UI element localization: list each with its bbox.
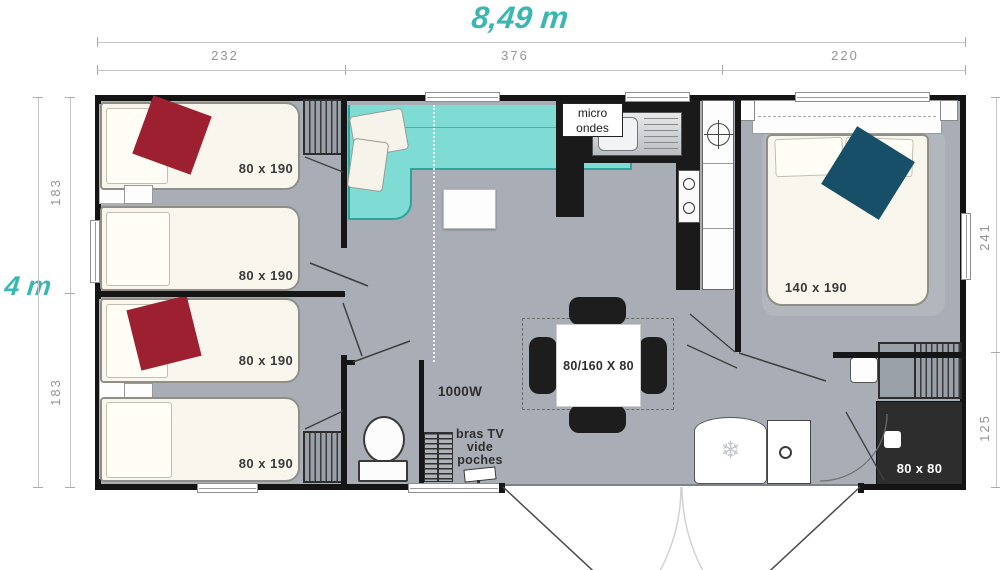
dim-tick	[33, 97, 43, 98]
floorplan-canvas: 8,49 m 232 376 220 4 m 183 183 241 125 8…	[0, 0, 1000, 570]
dim-tick	[65, 293, 75, 294]
wall-left-block-bottom	[341, 355, 347, 490]
master-nightstand-right	[940, 100, 958, 121]
shower-drain	[884, 431, 901, 448]
window-right-master	[961, 213, 971, 280]
wall-master-bedroom	[735, 95, 741, 352]
master-bed-size-label: 140 x 190	[766, 280, 866, 295]
dim-tick	[33, 487, 43, 488]
coffee-table	[443, 189, 496, 229]
table-size-label: 80/160 X 80	[563, 359, 634, 373]
dim-right-2: 125	[974, 388, 994, 468]
patio-door-arc-right	[682, 487, 860, 570]
window-top-living	[425, 92, 500, 102]
wall-toilet-right	[419, 360, 424, 487]
dim-top-2: 376	[440, 48, 590, 63]
dim-left-2: 183	[45, 352, 65, 432]
toilet-tank	[358, 460, 408, 482]
kitchen-counter-left	[556, 163, 584, 217]
sofa-bed-fold-line	[433, 105, 435, 362]
dim-top-1: 232	[150, 48, 300, 63]
toilet-bowl	[363, 416, 405, 463]
dining-table: 80/160 X 80	[556, 324, 641, 407]
dim-line-left-total	[38, 97, 39, 488]
patio-door-arc-left	[503, 487, 681, 570]
bathroom-corner-fixture	[850, 357, 878, 383]
dim-tick	[991, 97, 1000, 98]
patio-hinge-right	[858, 483, 864, 493]
window-bottom-hall	[408, 483, 500, 493]
dim-tick	[991, 352, 1000, 353]
microwave-label-line1: micro	[563, 106, 622, 121]
microwave-box: micro ondes	[562, 103, 623, 137]
window-bottom-bedroom2	[197, 483, 258, 493]
dim-tick	[345, 65, 346, 75]
dim-tick	[65, 487, 75, 488]
dim-right-1: 241	[974, 197, 994, 277]
tv-shelf-label: bras TV vide poches	[442, 428, 518, 467]
bed-4-size-label: 80 x 190	[216, 456, 316, 471]
sink-drainer	[644, 118, 678, 150]
tv-label-line3: poches	[442, 454, 518, 467]
microwave-label-line2: ondes	[563, 121, 622, 136]
patio-door-leaf-left	[503, 487, 633, 570]
wardrobe-bedroom-1	[303, 99, 344, 155]
bed-2-pillow	[106, 212, 170, 286]
bed-4-pillow	[106, 402, 172, 478]
dim-tick	[65, 97, 75, 98]
patio-hinge-left	[499, 483, 505, 493]
wall-toilet-top-stub	[341, 360, 355, 365]
dim-line-top-segments	[97, 70, 966, 71]
patio-door-leaf-right	[730, 487, 860, 570]
dim-tick	[97, 37, 98, 47]
bed-3-size-label: 80 x 190	[216, 353, 316, 368]
window-top-master	[795, 92, 930, 102]
dining-chair-bottom	[569, 405, 626, 433]
window-top-kitchen	[625, 92, 690, 102]
bed-2-size-label: 80 x 190	[216, 268, 316, 283]
dim-top-3: 220	[770, 48, 920, 63]
dim-line-right-segments	[996, 97, 997, 488]
dim-tick	[991, 487, 1000, 488]
total-width-label: 8,49 m	[418, 0, 622, 36]
cooktop-burner-2	[683, 202, 695, 214]
dim-left-1: 183	[45, 152, 65, 232]
sofa-cushion-2	[347, 138, 390, 193]
snowflake-icon: ❄	[720, 436, 740, 465]
dining-chair-left	[529, 337, 557, 394]
dining-chair-right	[639, 337, 667, 394]
heater-power-label: 1000W	[425, 384, 495, 399]
shower-size-label: 80 x 80	[876, 461, 963, 476]
bed-1-size-label: 80 x 190	[216, 161, 316, 176]
wall-left-block-top	[341, 95, 347, 248]
wardrobe-bedroom-2	[303, 431, 344, 483]
washbasin-knob	[779, 446, 792, 459]
window-left-bedroom	[90, 220, 100, 283]
master-headboard	[752, 100, 942, 134]
wall-bedrooms-divider	[95, 291, 345, 297]
dining-chair-top	[569, 297, 626, 325]
nightstand-1	[124, 185, 153, 204]
cooktop-burner-1	[683, 178, 695, 190]
tall-unit-divider-2	[703, 228, 733, 229]
dim-line-top-total	[97, 42, 966, 43]
patio-threshold	[503, 484, 860, 486]
fridge: ❄	[694, 417, 767, 484]
wall-bathroom-top	[833, 352, 966, 358]
vent-fixture-cross-v	[718, 120, 719, 149]
dim-tick	[97, 65, 98, 75]
dim-tick	[965, 37, 966, 47]
master-headboard-dashline	[758, 116, 936, 117]
dim-tick	[722, 65, 723, 75]
dim-tick	[965, 65, 966, 75]
tall-unit-divider-1	[703, 163, 733, 164]
